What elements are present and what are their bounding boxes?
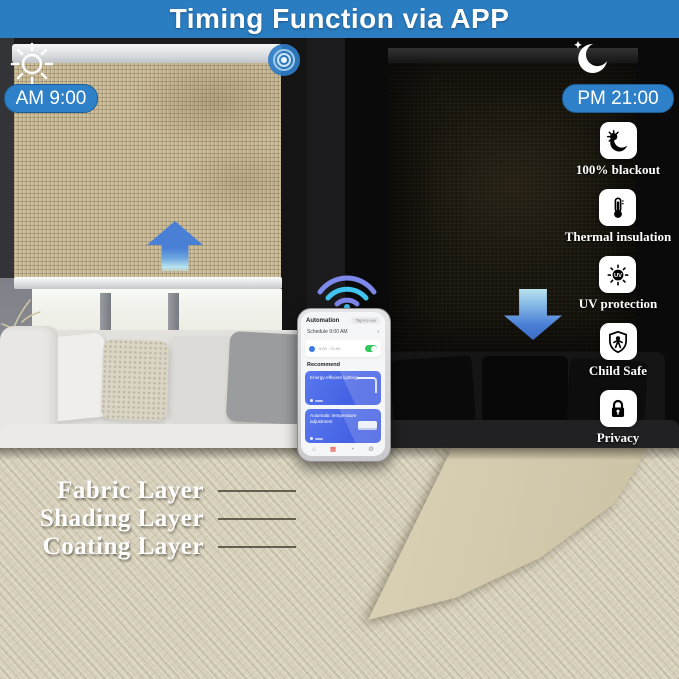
feature-blackout: 100% blackout: [576, 122, 660, 178]
layer-labels: Fabric Layer Shading Layer Coating Layer: [26, 477, 296, 561]
sun-icon: [10, 42, 54, 86]
feature-label: Thermal insulation: [565, 229, 672, 245]
layer-row-shading: Shading Layer: [26, 505, 296, 533]
card-footer: [310, 399, 323, 402]
moon-stars-icon: [566, 38, 612, 84]
app-header: Automation Tap-to-run: [306, 317, 380, 324]
card-footer: [310, 437, 323, 440]
card-title: Automatic temperature adjustment: [310, 413, 358, 424]
knit-pillow: [101, 339, 170, 421]
layer-row-coating: Coating Layer: [26, 533, 296, 561]
padlock-icon: [600, 390, 637, 427]
recommend-card-temperature[interactable]: Automatic temperature adjustment: [305, 409, 381, 443]
product-image: Timing Function via APP AM 9:00: [0, 0, 679, 679]
thermometer-icon: [599, 189, 636, 226]
schedule-row[interactable]: Schedule 9:00 AM ›: [307, 329, 379, 335]
layer-label: Fabric Layer: [26, 477, 204, 505]
uv-sun-icon: UV: [599, 256, 636, 293]
chevron-right-icon: ›: [377, 329, 379, 335]
day-sofa-seat: [0, 424, 345, 448]
nav-me-icon[interactable]: ⚙: [368, 445, 374, 453]
feature-thermal: Thermal insulation: [565, 189, 672, 245]
leader-line: [218, 490, 296, 492]
timer-toggle-on[interactable]: [365, 345, 377, 352]
blind-bottom-rail: [14, 277, 282, 289]
nav-smart-icon[interactable]: ◔: [350, 446, 354, 453]
feature-label: Privacy: [597, 430, 640, 446]
schedule-title: Schedule 9:00 AM: [307, 329, 348, 335]
day-time-badge: AM 9:00: [4, 84, 98, 113]
gray-pillow: [226, 331, 309, 425]
night-time-label: PM 21:00: [577, 88, 658, 110]
feature-list: 100% blackout Thermal insulation: [559, 122, 677, 446]
child-shield-icon: [600, 323, 637, 360]
tab-tap-to-run[interactable]: Tap-to-run: [351, 317, 380, 324]
blackout-sun-moon-icon: [600, 122, 637, 159]
lamp-illustration: [357, 377, 377, 393]
feature-privacy: Privacy: [597, 390, 640, 446]
night-time-badge: PM 21:00: [562, 84, 674, 113]
feature-label: 100% blackout: [576, 162, 660, 178]
timer-card[interactable]: 9:00 - 21:00: [305, 340, 381, 357]
banner: Timing Function via APP: [0, 0, 679, 38]
smartphone: Automation Tap-to-run Schedule 9:00 AM ›…: [297, 308, 391, 462]
svg-text:UV: UV: [614, 273, 622, 279]
timer-times: 9:00 - 21:00: [319, 346, 365, 351]
air-conditioner-illustration: [358, 421, 377, 430]
feature-uv: UV UV protection: [579, 256, 658, 312]
card-title: Energy-efficient lighting: [310, 375, 358, 381]
timer-icon: [309, 346, 315, 352]
wifi-icon: [314, 258, 380, 310]
nav-scene-icon[interactable]: ▦: [330, 445, 336, 453]
tab-automation[interactable]: Automation: [306, 318, 339, 324]
feature-label: Child Safe: [589, 363, 647, 379]
layer-row-fabric: Fabric Layer: [26, 477, 296, 505]
feature-label: UV protection: [579, 296, 658, 312]
recommend-heading: Recommend: [307, 362, 340, 368]
window-frame-right: [281, 38, 307, 348]
smart-motor-icon: [266, 42, 302, 78]
bottom-nav: ⌂ ▦ ◔ ⚙: [305, 445, 381, 453]
day-time-label: AM 9:00: [16, 88, 87, 110]
leader-line: [218, 546, 296, 548]
nav-home-icon[interactable]: ⌂: [312, 446, 316, 453]
banner-title: Timing Function via APP: [170, 3, 510, 35]
leader-line: [218, 518, 296, 520]
feature-child-safe: Child Safe: [589, 323, 647, 379]
recommend-card-lighting[interactable]: Energy-efficient lighting: [305, 371, 381, 405]
layer-label: Coating Layer: [26, 533, 204, 561]
app-screen: Automation Tap-to-run Schedule 9:00 AM ›…: [301, 312, 385, 456]
layer-label: Shading Layer: [26, 505, 204, 533]
